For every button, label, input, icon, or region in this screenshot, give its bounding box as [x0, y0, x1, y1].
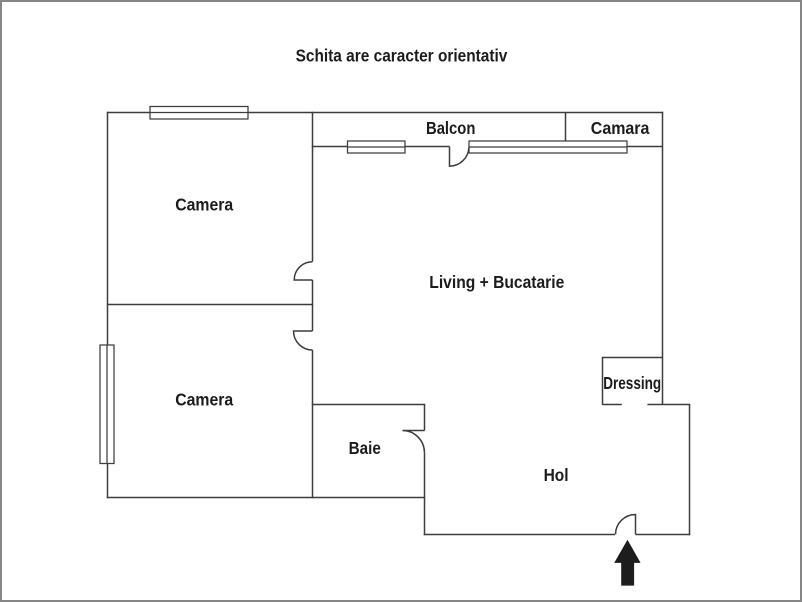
- svg-text:Living + Bucatarie: Living + Bucatarie: [429, 272, 564, 292]
- svg-text:Camera: Camera: [175, 390, 233, 410]
- svg-text:Dressing: Dressing: [603, 373, 661, 393]
- svg-text:Schita are caracter orientativ: Schita are caracter orientativ: [296, 45, 508, 65]
- svg-text:Balcon: Balcon: [426, 118, 475, 138]
- svg-text:Camera: Camera: [175, 194, 233, 214]
- svg-text:Camara: Camara: [591, 118, 650, 138]
- svg-text:Hol: Hol: [544, 465, 569, 485]
- svg-text:Baie: Baie: [349, 438, 381, 458]
